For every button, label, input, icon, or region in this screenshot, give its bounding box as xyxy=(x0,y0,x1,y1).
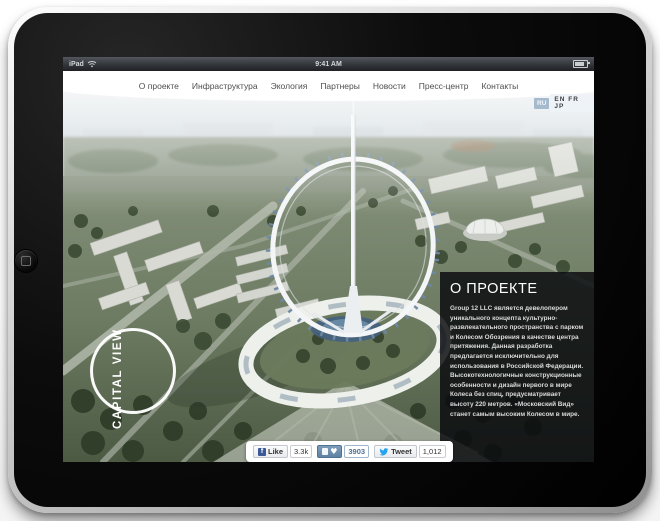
nav-item-infrastructure[interactable]: Инфраструктура xyxy=(192,81,258,91)
status-bar: iPad 9:41 AM xyxy=(63,57,594,71)
page: iPad 9:41 AM xyxy=(0,0,660,521)
about-title: О ПРОЕКТЕ xyxy=(450,281,584,297)
vk-like-button[interactable]: ♥ xyxy=(317,445,342,458)
nav-item-press-center[interactable]: Пресс-центр xyxy=(419,81,469,91)
facebook-like-count: 3.3k xyxy=(290,445,312,458)
nav-item-ecology[interactable]: Экология xyxy=(271,81,308,91)
battery-icon xyxy=(573,60,588,68)
facebook-like-button[interactable]: f Like xyxy=(253,445,288,458)
screen: iPad 9:41 AM xyxy=(63,57,594,462)
social-share-bar: f Like 3.3k ♥ 3903 xyxy=(246,441,453,462)
facebook-like-label: Like xyxy=(268,447,283,456)
site-header: О проекте Инфраструктура Экология Партне… xyxy=(63,71,594,101)
vk-like-group: ♥ 3903 xyxy=(317,445,369,458)
lang-options[interactable]: EN FR JP xyxy=(550,94,594,112)
twitter-bird-icon xyxy=(379,448,389,456)
about-body: Group 12 LLC является девелопером уникал… xyxy=(450,304,584,419)
capital-view-logo-circle xyxy=(90,328,176,414)
ipad-device-frame: iPad 9:41 AM xyxy=(8,7,652,513)
lang-ru-selected[interactable]: RU xyxy=(534,98,549,109)
tweet-button[interactable]: Tweet xyxy=(374,445,417,458)
tweet-label: Tweet xyxy=(391,447,412,456)
vk-icon xyxy=(322,448,328,455)
nav-item-about[interactable]: О проекте xyxy=(139,81,179,91)
vk-like-count: 3903 xyxy=(344,445,369,458)
home-button-icon xyxy=(21,256,31,266)
tweet-group: Tweet 1,012 xyxy=(374,445,445,458)
nav-item-partners[interactable]: Партнеры xyxy=(320,81,360,91)
main-nav: О проекте Инфраструктура Экология Партне… xyxy=(139,81,518,91)
home-button[interactable] xyxy=(15,250,37,272)
status-time: 9:41 AM xyxy=(63,61,594,68)
heart-icon: ♥ xyxy=(330,448,337,456)
nav-item-news[interactable]: Новости xyxy=(373,81,406,91)
capital-view-logo-text: CAPITAL VIEW xyxy=(112,307,126,429)
nav-item-contacts[interactable]: Контакты xyxy=(481,81,518,91)
tweet-count: 1,012 xyxy=(419,445,446,458)
facebook-like-group: f Like 3.3k xyxy=(253,445,312,458)
facebook-icon: f xyxy=(258,448,266,456)
language-switcher: RU EN FR JP xyxy=(534,94,594,112)
about-project-panel: О ПРОЕКТЕ Group 12 LLC является девелопе… xyxy=(440,272,594,462)
